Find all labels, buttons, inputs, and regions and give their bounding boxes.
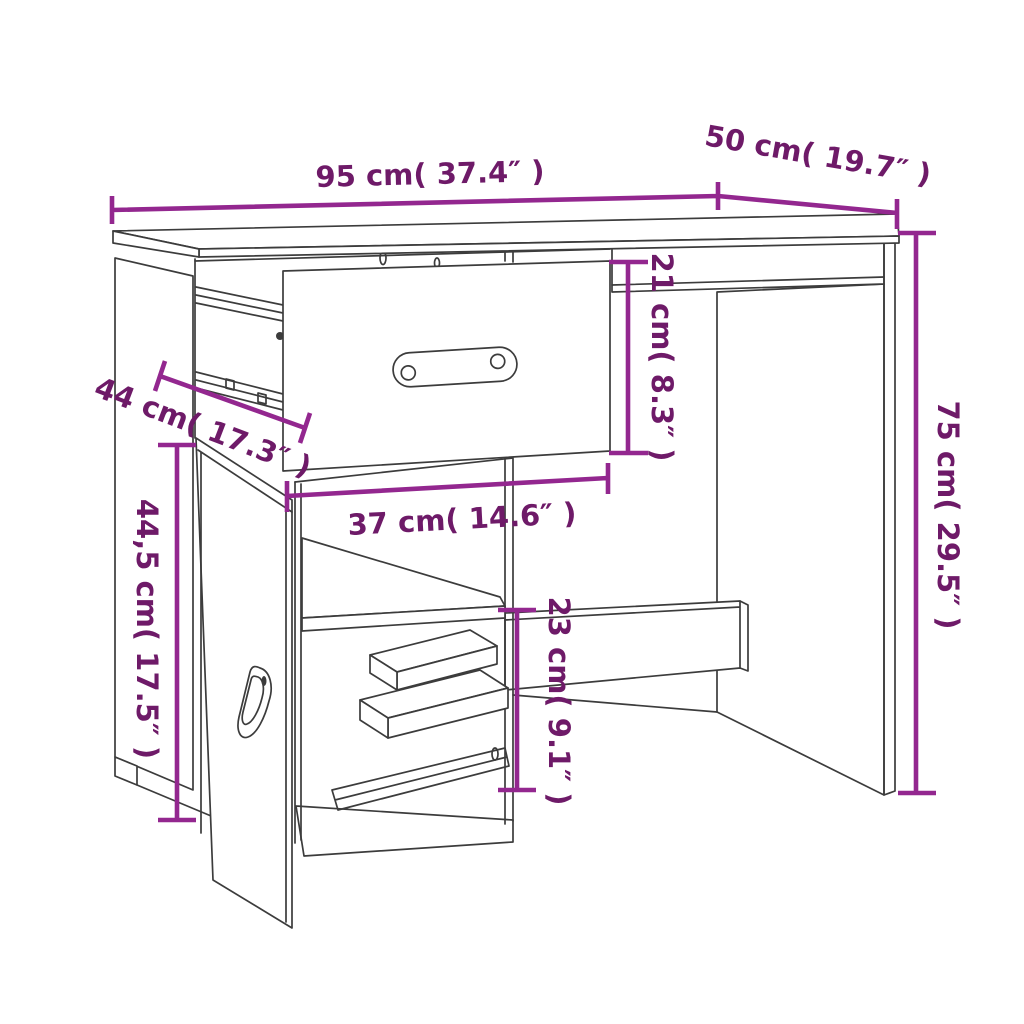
pedestal-base-edges	[296, 806, 513, 856]
pedestal-inner-left-wall	[295, 482, 301, 843]
dimension-diagram-page: 95 cm( 37.4″ ) 50 cm( 19.7″ ) 75 cm( 29.…	[0, 0, 1024, 1024]
door-panel[interactable]	[196, 438, 292, 928]
cabinet-door	[196, 438, 292, 928]
dimension-depth-label: 50 cm( 19.7″ )	[702, 118, 934, 191]
dimension-height: 75 cm( 29.5″ )	[898, 233, 965, 793]
right-side-panel-inner-face	[717, 284, 884, 795]
dimension-width-label: 95 cm( 37.4″ )	[315, 154, 545, 194]
dimension-height-label: 75 cm( 29.5″ )	[931, 400, 965, 629]
dimension-drawer-width: 37 cm( 14.6″ )	[287, 463, 608, 542]
door-handle-pin	[262, 676, 267, 686]
dimension-line	[898, 233, 936, 793]
drawer-handle[interactable]	[392, 346, 518, 388]
dimension-compartment-height-label: 23 cm( 9.1″ )	[542, 597, 576, 806]
loose-sheets	[332, 748, 509, 810]
crossbar-body	[505, 601, 748, 690]
bottom-crossbar	[505, 601, 748, 690]
dimension-drawer-height-label: 21 cm( 8.3″ )	[645, 253, 679, 462]
dimension-width: 95 cm( 37.4″ )	[112, 154, 718, 224]
dimension-drawer-width-label: 37 cm( 14.6″ )	[347, 496, 578, 542]
middle-shelf-top	[302, 538, 505, 618]
right-side-panel-front-edges	[884, 236, 895, 795]
drawer	[283, 261, 610, 471]
dimension-depth: 50 cm( 19.7″ )	[702, 118, 934, 229]
desk-drawing	[113, 214, 899, 928]
dimension-door-height-label: 44,5 cm( 17.5″ )	[130, 499, 164, 759]
desk-dimension-diagram: 95 cm( 37.4″ ) 50 cm( 19.7″ ) 75 cm( 29.…	[0, 0, 1024, 1024]
